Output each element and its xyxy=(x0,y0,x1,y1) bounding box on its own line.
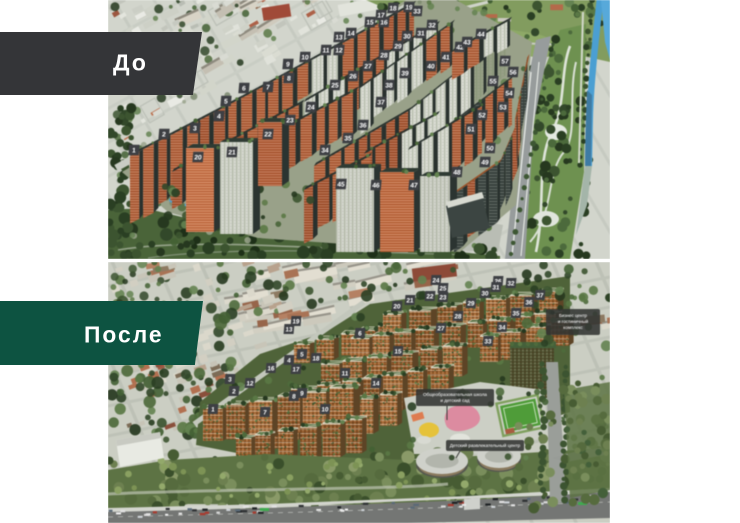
svg-text:14: 14 xyxy=(372,380,380,387)
svg-text:54: 54 xyxy=(505,90,513,97)
svg-text:22: 22 xyxy=(264,131,272,138)
svg-text:13: 13 xyxy=(335,34,343,41)
svg-text:25: 25 xyxy=(331,82,339,89)
svg-text:55: 55 xyxy=(489,78,497,85)
svg-text:56: 56 xyxy=(509,69,517,76)
svg-text:37: 37 xyxy=(377,99,385,106)
svg-text:30: 30 xyxy=(403,33,411,40)
svg-text:12: 12 xyxy=(246,380,254,387)
svg-text:51: 51 xyxy=(467,126,475,133)
svg-text:23: 23 xyxy=(439,294,447,301)
svg-text:27: 27 xyxy=(364,63,372,70)
svg-text:30: 30 xyxy=(481,290,489,297)
svg-text:16: 16 xyxy=(267,365,275,372)
svg-text:17: 17 xyxy=(292,366,300,373)
svg-text:13: 13 xyxy=(285,326,293,333)
svg-text:31: 31 xyxy=(417,30,425,37)
svg-text:43: 43 xyxy=(463,39,471,46)
svg-text:Общеобразовательная школа: Общеобразовательная школа xyxy=(423,392,487,397)
svg-text:44: 44 xyxy=(477,31,485,38)
svg-text:37: 37 xyxy=(536,292,544,299)
svg-text:34: 34 xyxy=(498,324,506,331)
svg-text:33: 33 xyxy=(484,338,492,345)
svg-text:25: 25 xyxy=(439,285,447,292)
svg-text:47: 47 xyxy=(410,182,418,189)
svg-text:18: 18 xyxy=(389,5,397,12)
svg-text:комплекс: комплекс xyxy=(563,325,583,330)
svg-text:22: 22 xyxy=(426,293,434,300)
svg-text:33: 33 xyxy=(413,8,421,15)
svg-text:10: 10 xyxy=(321,406,329,413)
svg-text:57: 57 xyxy=(501,58,509,65)
svg-text:45: 45 xyxy=(337,181,345,188)
svg-text:17: 17 xyxy=(377,12,385,19)
svg-text:11: 11 xyxy=(341,370,349,377)
svg-text:36: 36 xyxy=(525,299,533,306)
svg-text:12: 12 xyxy=(335,47,343,54)
svg-text:34: 34 xyxy=(321,147,329,154)
svg-text:49: 49 xyxy=(481,159,489,166)
svg-text:53: 53 xyxy=(499,104,507,111)
svg-text:16: 16 xyxy=(380,19,388,26)
svg-text:и гостиничный: и гостиничный xyxy=(558,318,589,324)
svg-text:36: 36 xyxy=(359,122,367,129)
svg-text:10: 10 xyxy=(301,54,309,61)
svg-text:24: 24 xyxy=(307,104,315,111)
svg-text:31: 31 xyxy=(492,284,500,291)
svg-text:20: 20 xyxy=(393,303,401,310)
svg-text:26: 26 xyxy=(349,73,357,80)
svg-text:35: 35 xyxy=(512,310,520,317)
svg-text:11: 11 xyxy=(322,47,330,54)
svg-text:32: 32 xyxy=(428,22,436,29)
svg-text:15: 15 xyxy=(366,19,374,26)
svg-text:Детский развлекательный центр: Детский развлекательный центр xyxy=(450,442,521,448)
svg-text:29: 29 xyxy=(394,43,402,50)
svg-text:52: 52 xyxy=(478,112,486,119)
svg-text:21: 21 xyxy=(228,149,236,156)
svg-text:28: 28 xyxy=(380,52,388,59)
svg-text:Бизнес центр: Бизнес центр xyxy=(559,313,588,318)
svg-text:39: 39 xyxy=(401,70,409,77)
svg-text:15: 15 xyxy=(394,348,402,355)
svg-text:27: 27 xyxy=(437,325,445,332)
svg-text:41: 41 xyxy=(442,54,450,61)
svg-text:32: 32 xyxy=(507,280,515,287)
svg-text:29: 29 xyxy=(467,300,475,307)
svg-text:18: 18 xyxy=(312,355,320,362)
svg-text:23: 23 xyxy=(286,117,294,124)
svg-text:20: 20 xyxy=(194,154,202,161)
svg-text:28: 28 xyxy=(454,313,462,320)
svg-text:50: 50 xyxy=(486,145,494,152)
svg-text:46: 46 xyxy=(372,182,380,189)
svg-text:38: 38 xyxy=(385,82,393,89)
svg-text:и детский сад: и детский сад xyxy=(440,397,470,403)
svg-text:14: 14 xyxy=(347,30,355,37)
svg-text:40: 40 xyxy=(427,63,435,70)
svg-text:35: 35 xyxy=(344,135,352,142)
svg-text:21: 21 xyxy=(406,297,414,304)
svg-text:48: 48 xyxy=(453,169,461,176)
svg-text:19: 19 xyxy=(292,318,300,325)
